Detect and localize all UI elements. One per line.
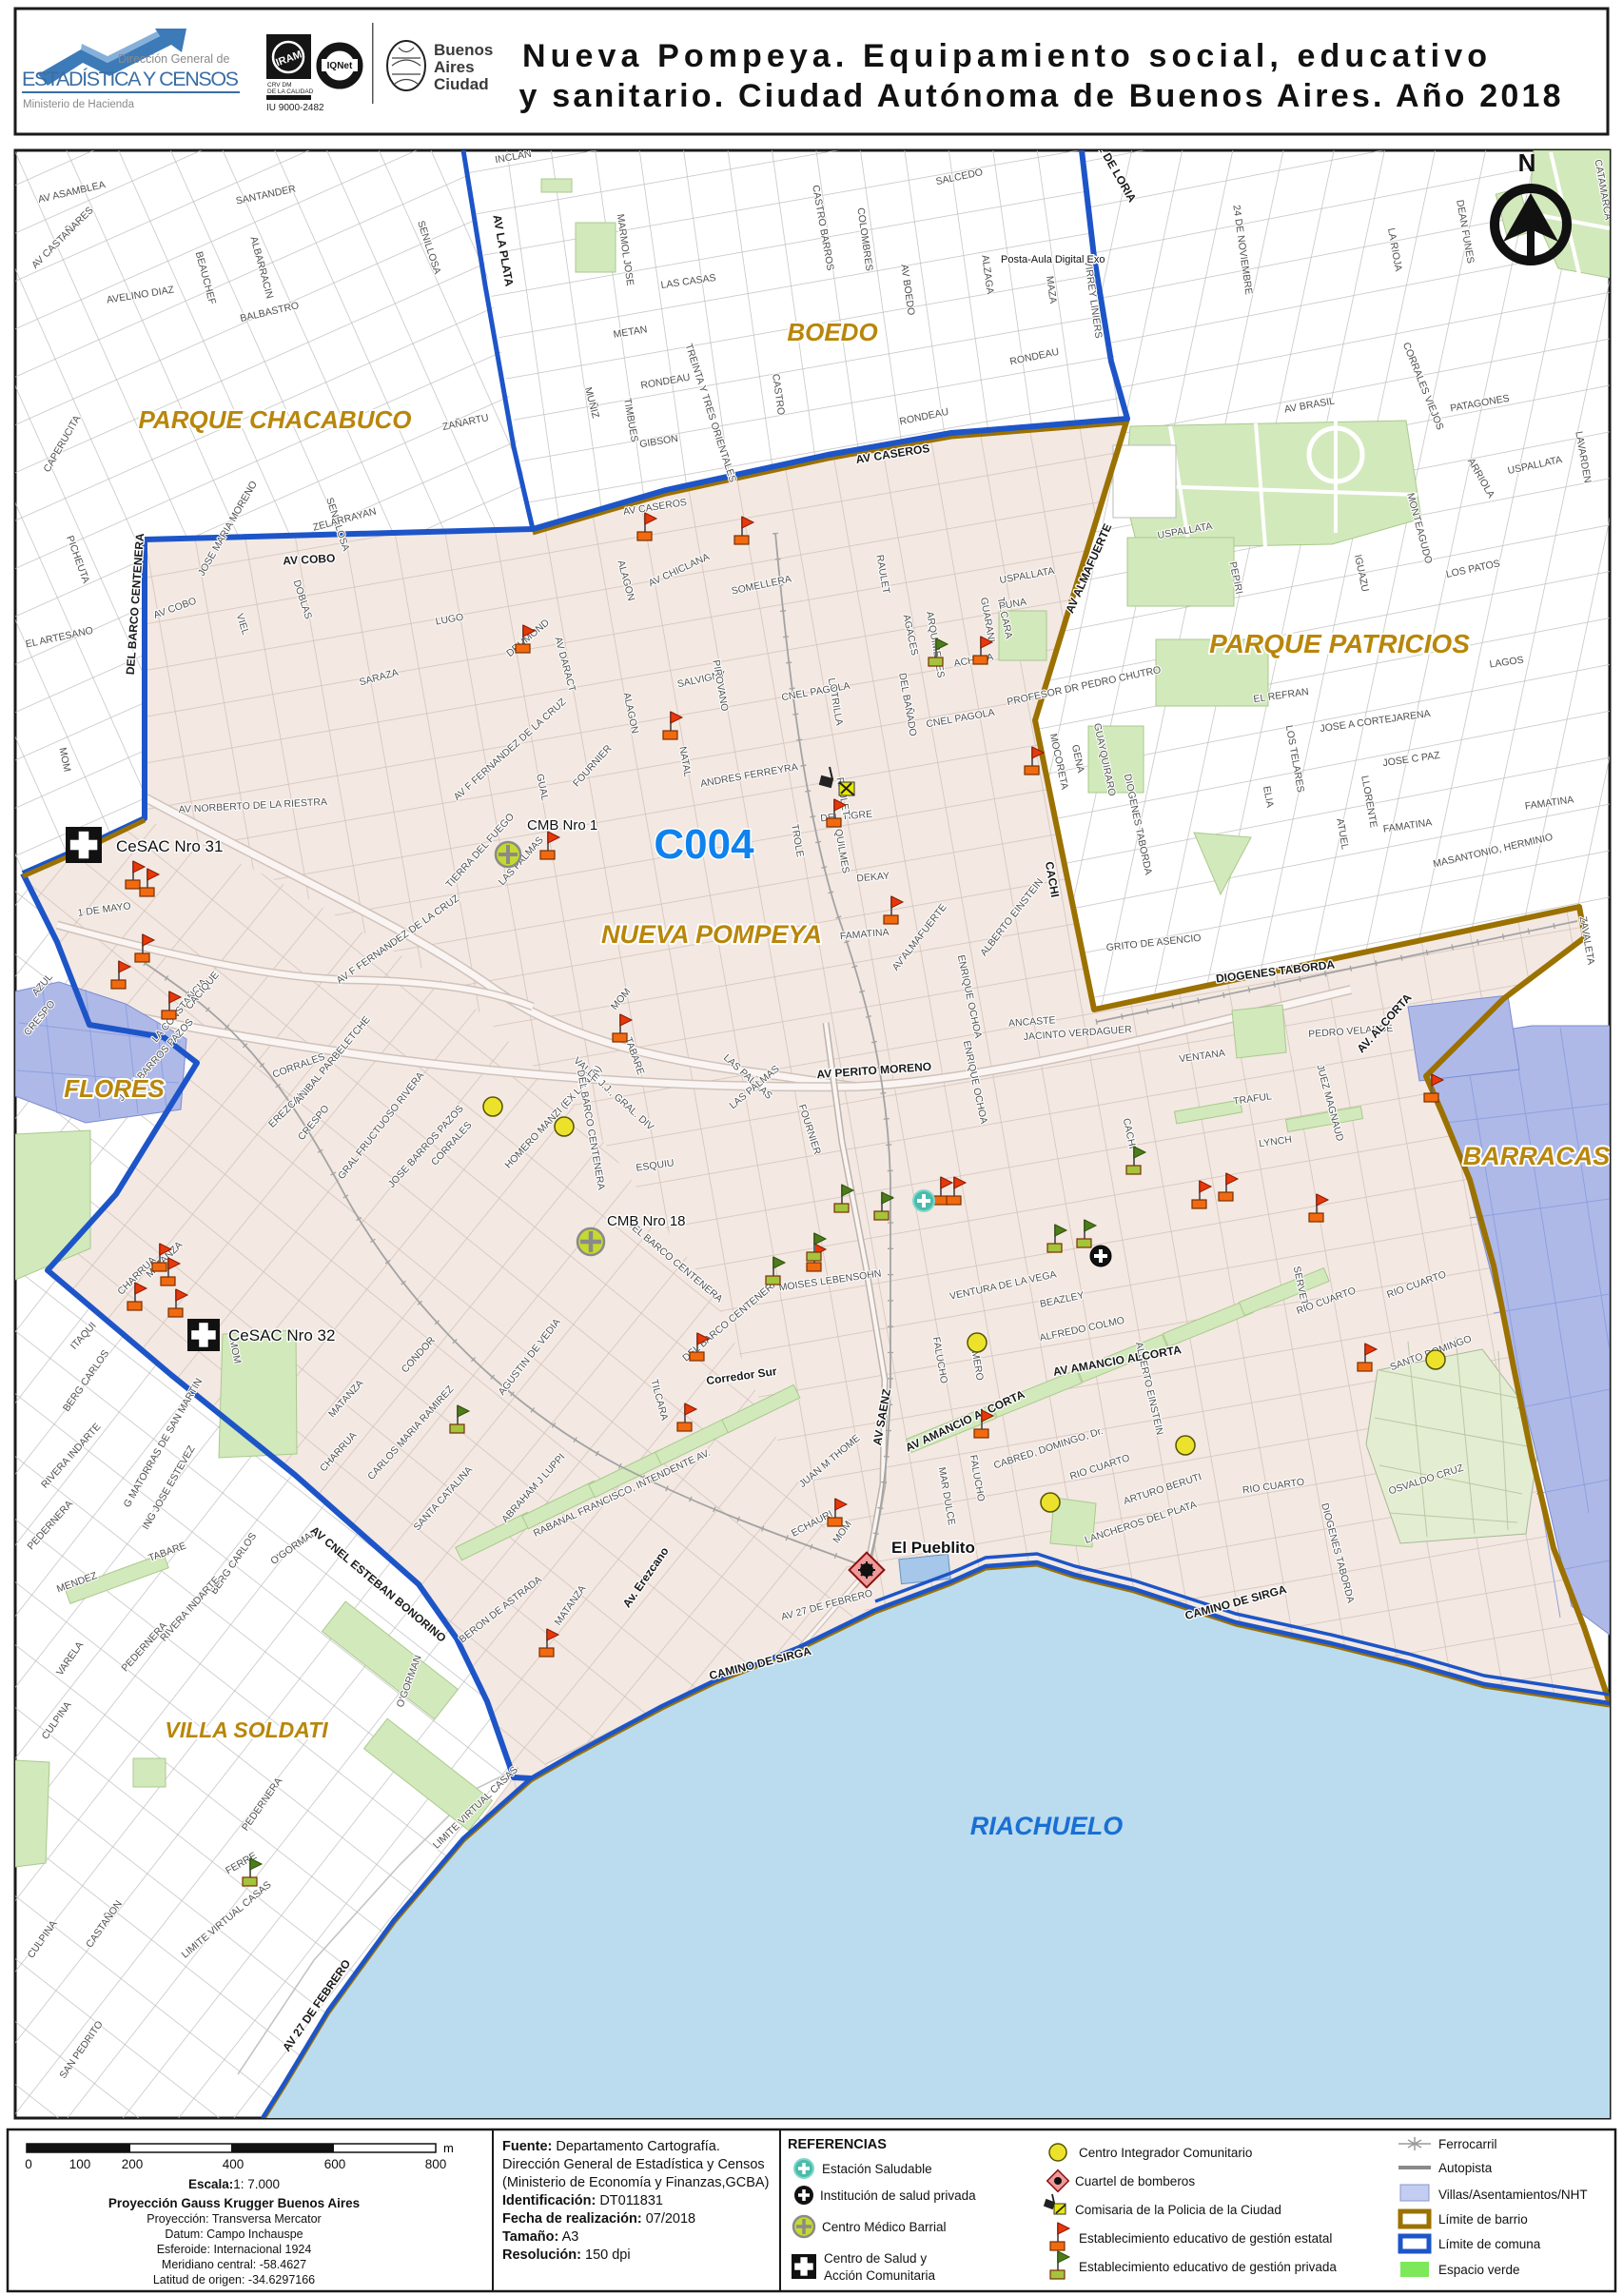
svg-text:Estación Saludable: Estación Saludable bbox=[822, 2162, 932, 2176]
svg-text:Meridiano central: -58.4627: Meridiano central: -58.4627 bbox=[162, 2258, 306, 2271]
svg-text:El Pueblito: El Pueblito bbox=[891, 1539, 975, 1557]
svg-text:Tamaño: A3: Tamaño: A3 bbox=[502, 2229, 578, 2245]
svg-text:AV COBO: AV COBO bbox=[283, 552, 336, 568]
svg-text:Latitud de origen: -34.6297166: Latitud de origen: -34.6297166 bbox=[153, 2273, 315, 2286]
svg-text:Institución de salud privada: Institución de salud privada bbox=[820, 2188, 976, 2203]
svg-text:IU 9000-2482: IU 9000-2482 bbox=[266, 103, 324, 113]
svg-text:CMB Nro 1: CMB Nro 1 bbox=[527, 817, 597, 834]
svg-text:PARQUE CHACABUCO: PARQUE CHACABUCO bbox=[139, 405, 412, 434]
svg-text:Proyección: Transversa Mercato: Proyección: Transversa Mercator bbox=[147, 2212, 321, 2226]
svg-text:200: 200 bbox=[122, 2157, 144, 2171]
svg-text:Villas/Asentamientos/NHT: Villas/Asentamientos/NHT bbox=[1438, 2188, 1588, 2202]
svg-text:BOEDO: BOEDO bbox=[787, 318, 877, 346]
svg-text:Comisaria de la Policia de la: Comisaria de la Policia de la Ciudad bbox=[1075, 2203, 1281, 2217]
svg-text:Ministerio de Hacienda: Ministerio de Hacienda bbox=[23, 99, 135, 110]
svg-text:Fuente: Departamento Cartograf: Fuente: Departamento Cartografía. bbox=[502, 2139, 720, 2154]
svg-text:Establecimiento educativo de g: Establecimiento educativo de gestión est… bbox=[1079, 2231, 1332, 2246]
svg-text:Aires: Aires bbox=[434, 58, 475, 76]
svg-text:100: 100 bbox=[69, 2157, 91, 2171]
svg-text:C004: C004 bbox=[654, 821, 754, 868]
svg-text:Límite de comuna: Límite de comuna bbox=[1438, 2237, 1541, 2251]
svg-text:Centro Integrador Comunitario: Centro Integrador Comunitario bbox=[1079, 2146, 1252, 2160]
svg-text:CeSAC Nro 32: CeSAC Nro 32 bbox=[228, 1326, 335, 1344]
svg-text:ESTADÍSTICA Y CENSOS: ESTADÍSTICA Y CENSOS bbox=[22, 67, 239, 90]
svg-text:NUEVA POMPEYA: NUEVA POMPEYA bbox=[601, 920, 822, 949]
svg-text:Autopista: Autopista bbox=[1438, 2161, 1493, 2175]
svg-text:Centro de Salud y: Centro de Salud y bbox=[824, 2251, 927, 2266]
svg-text:Acción Comunitaria: Acción Comunitaria bbox=[824, 2268, 936, 2283]
svg-text:y sanitario. Ciudad Autónoma: y sanitario. Ciudad Autónoma de Buenos A… bbox=[519, 78, 1561, 114]
svg-text:Escala:1: 7.000: Escala:1: 7.000 bbox=[188, 2177, 280, 2191]
svg-text:Proyección Gauss Krugger Bueno: Proyección Gauss Krugger Buenos Aires bbox=[108, 2196, 360, 2210]
svg-text:Buenos: Buenos bbox=[434, 41, 493, 59]
svg-text:N: N bbox=[1518, 148, 1536, 177]
svg-text:Esferoide: Internacional 1924: Esferoide: Internacional 1924 bbox=[157, 2243, 312, 2256]
svg-text:600: 600 bbox=[324, 2157, 346, 2171]
svg-text:Datum: Campo Inchauspe: Datum: Campo Inchauspe bbox=[165, 2227, 303, 2241]
svg-text:(Ministerio de Economía y Fina: (Ministerio de Economía y Finanzas,GCBA) bbox=[502, 2175, 769, 2190]
svg-text:Resolución: 150 dpi: Resolución: 150 dpi bbox=[502, 2247, 631, 2263]
svg-text:Identificación: DT011831: Identificación: DT011831 bbox=[502, 2193, 663, 2208]
svg-text:Dirección General de Estadísti: Dirección General de Estadística y Censo… bbox=[502, 2157, 765, 2172]
svg-text:Límite de barrio: Límite de barrio bbox=[1438, 2212, 1528, 2227]
svg-text:DE LA CALIDAD: DE LA CALIDAD bbox=[267, 88, 314, 95]
svg-text:Dirección General de: Dirección General de bbox=[118, 52, 229, 66]
svg-text:CRV DM: CRV DM bbox=[267, 82, 292, 88]
svg-text:Espacio verde: Espacio verde bbox=[1438, 2263, 1520, 2277]
svg-text:REFERENCIAS: REFERENCIAS bbox=[788, 2137, 887, 2152]
svg-text:400: 400 bbox=[223, 2157, 244, 2171]
svg-text:Posta-Aula Digital Exo: Posta-Aula Digital Exo bbox=[1001, 254, 1105, 265]
svg-text:BARRACAS: BARRACAS bbox=[1463, 1142, 1611, 1170]
svg-text:m: m bbox=[443, 2141, 454, 2155]
svg-text:Ferrocarril: Ferrocarril bbox=[1438, 2137, 1497, 2151]
svg-text:VILLA SOLDATI: VILLA SOLDATI bbox=[165, 1717, 328, 1742]
svg-text:RIACHUELO: RIACHUELO bbox=[970, 1812, 1124, 1840]
svg-text:Ciudad: Ciudad bbox=[434, 75, 489, 93]
svg-text:800: 800 bbox=[425, 2157, 447, 2171]
svg-text:Cuartel de bomberos: Cuartel de bomberos bbox=[1075, 2174, 1195, 2188]
svg-text:CeSAC Nro 31: CeSAC Nro 31 bbox=[116, 837, 223, 855]
svg-text:Fecha de realización: 07/2018: Fecha de realización: 07/2018 bbox=[502, 2211, 695, 2227]
svg-text:PARQUE PATRICIOS: PARQUE PATRICIOS bbox=[1209, 629, 1470, 658]
svg-text:Establecimiento educativo de g: Establecimiento educativo de gestión pri… bbox=[1079, 2260, 1337, 2274]
svg-text:0: 0 bbox=[25, 2157, 32, 2171]
svg-text:Centro Médico Barrial: Centro Médico Barrial bbox=[822, 2220, 947, 2234]
svg-text:FLORES: FLORES bbox=[64, 1074, 165, 1103]
svg-text:CMB Nro 18: CMB Nro 18 bbox=[607, 1213, 686, 1229]
svg-text:IQNet: IQNet bbox=[327, 61, 353, 71]
